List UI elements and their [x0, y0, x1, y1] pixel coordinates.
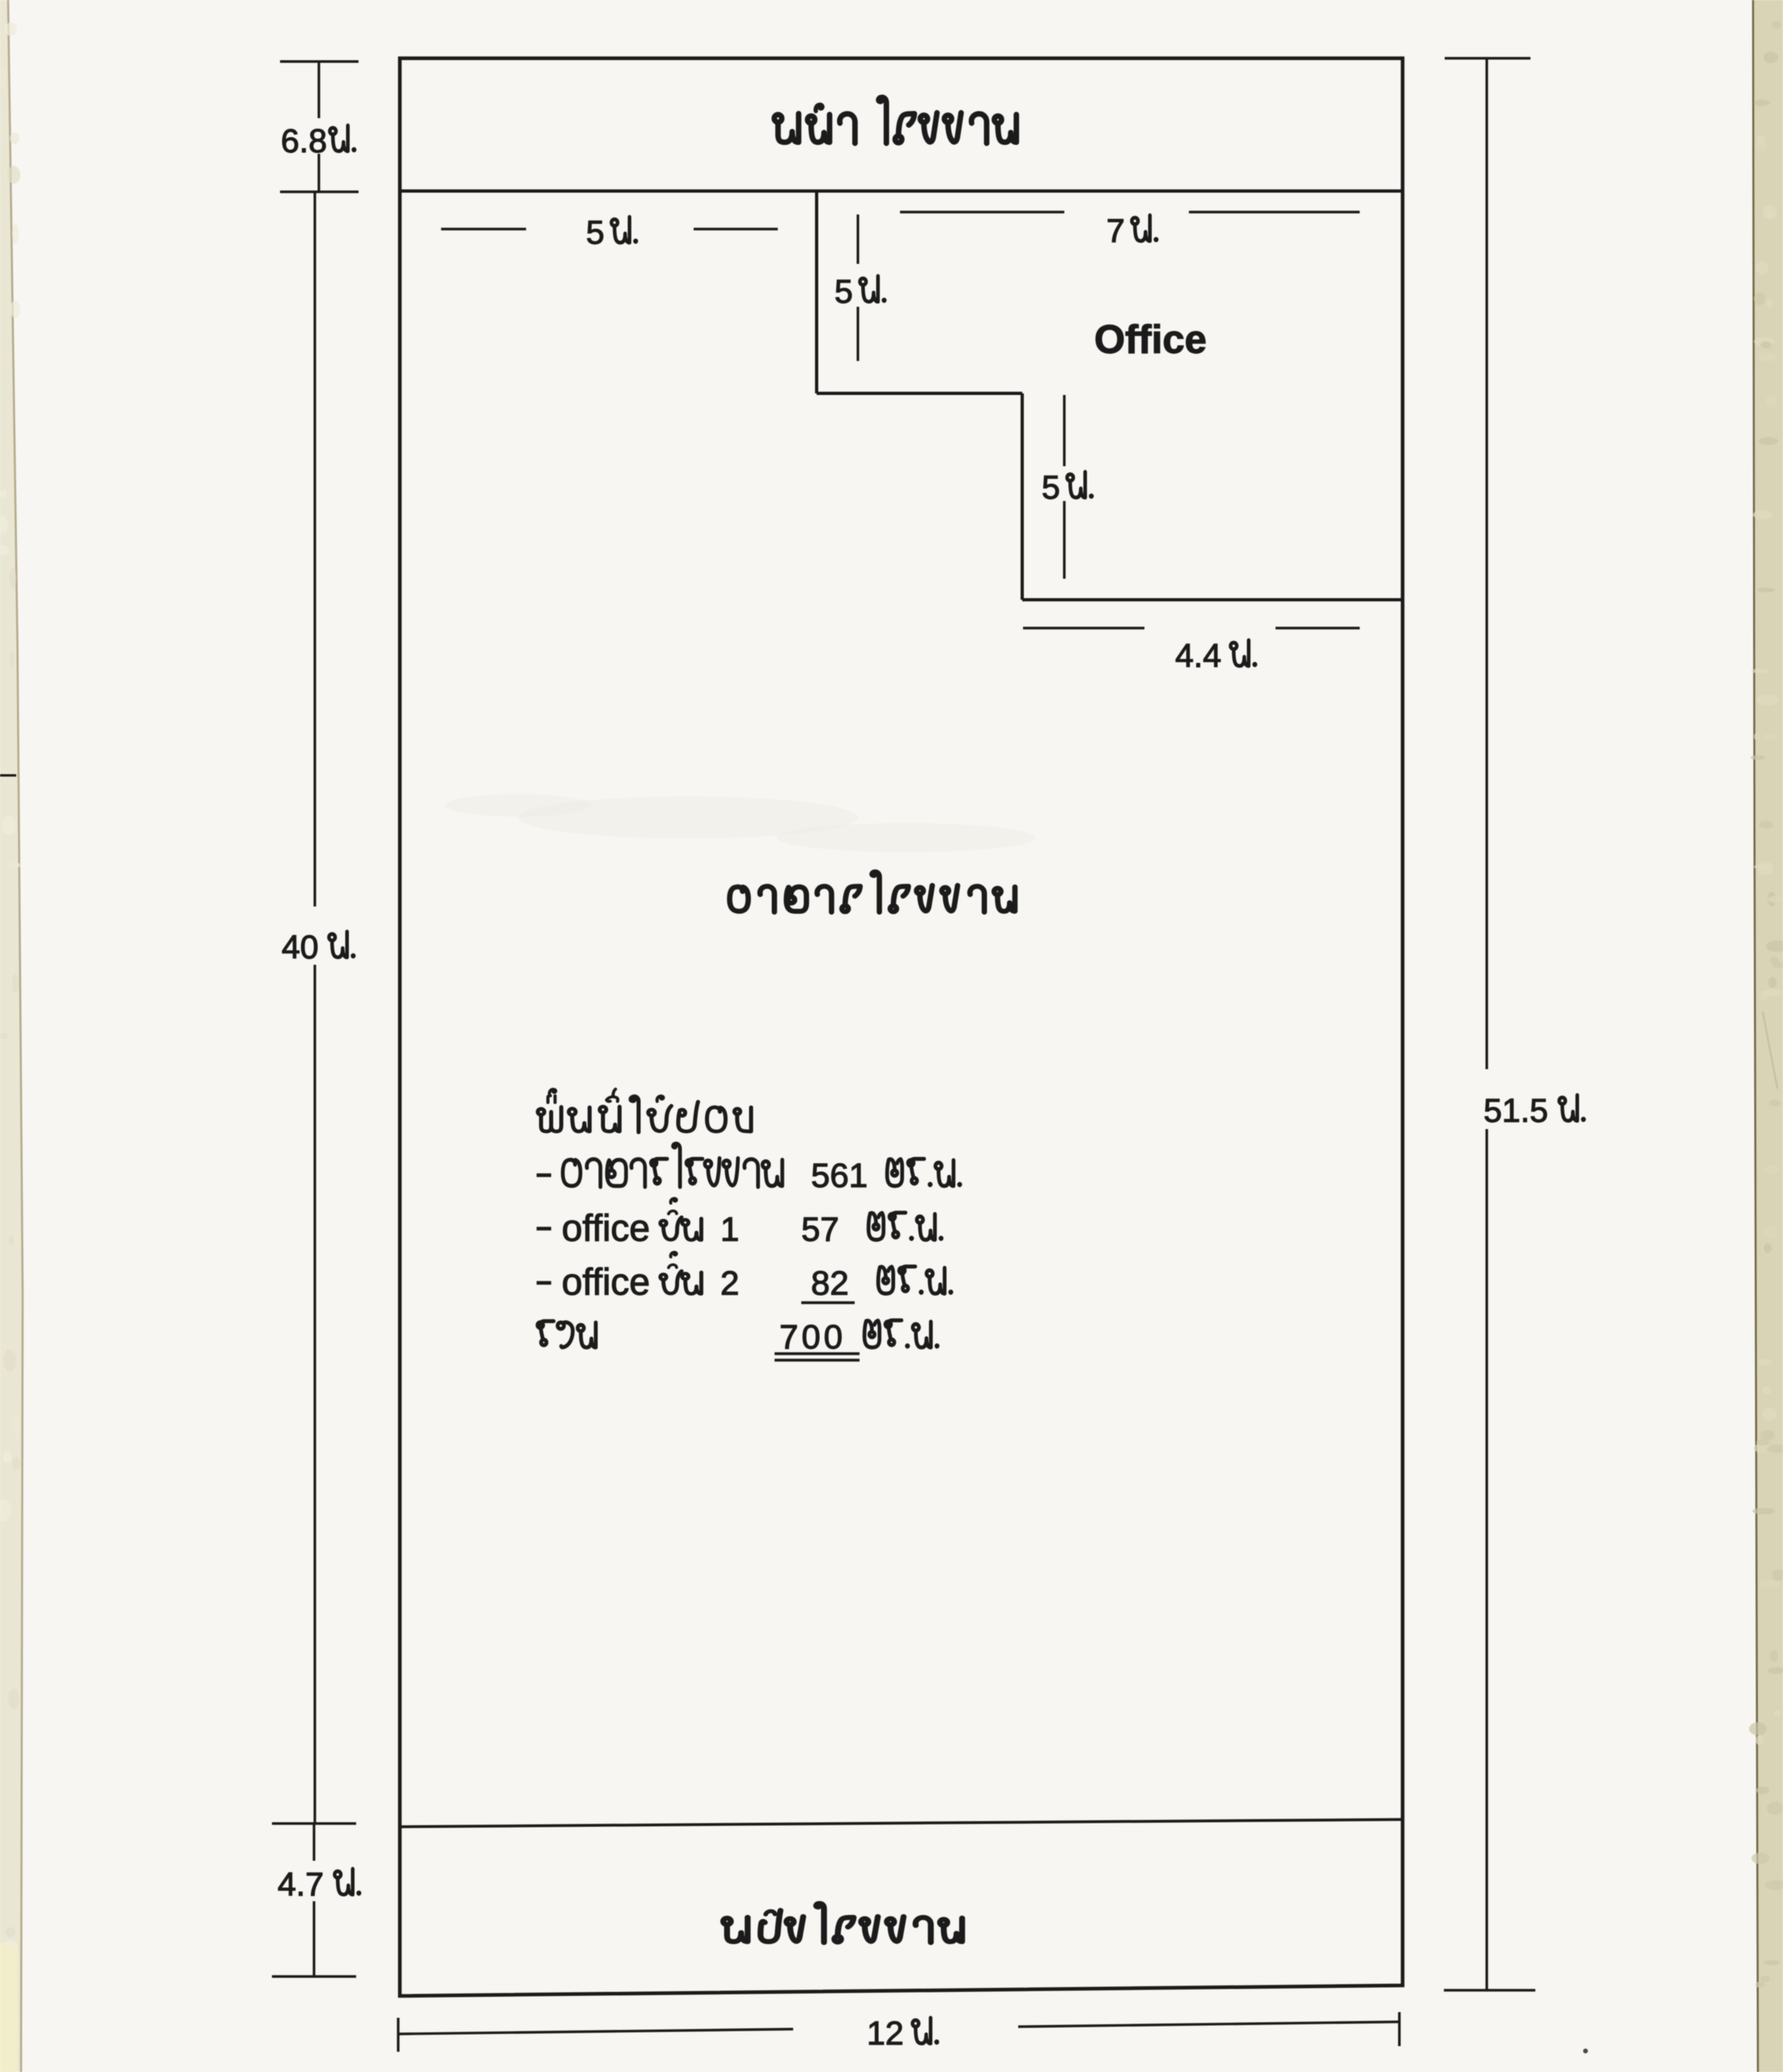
svg-text:5: 5	[834, 273, 853, 310]
svg-text:40: 40	[282, 928, 319, 966]
svg-text:5: 5	[586, 214, 605, 251]
svg-text:12: 12	[867, 2015, 904, 2052]
svg-text:office: office	[562, 1261, 650, 1303]
svg-text:Office: Office	[1094, 318, 1207, 362]
svg-text:5: 5	[1042, 469, 1060, 506]
svg-text:82: 82	[811, 1264, 849, 1302]
svg-text:7: 7	[1106, 212, 1125, 249]
svg-text:office: office	[562, 1207, 650, 1249]
svg-text:51.5: 51.5	[1484, 1092, 1548, 1129]
svg-text:57: 57	[801, 1210, 839, 1248]
svg-text:561: 561	[811, 1157, 868, 1195]
svg-text:700: 700	[779, 1318, 846, 1356]
svg-text:1: 1	[720, 1210, 739, 1248]
svg-text:4.4: 4.4	[1175, 637, 1221, 674]
svg-text:2: 2	[720, 1264, 739, 1302]
svg-text:6.8: 6.8	[281, 122, 327, 159]
svg-text:4.7: 4.7	[278, 1866, 324, 1903]
